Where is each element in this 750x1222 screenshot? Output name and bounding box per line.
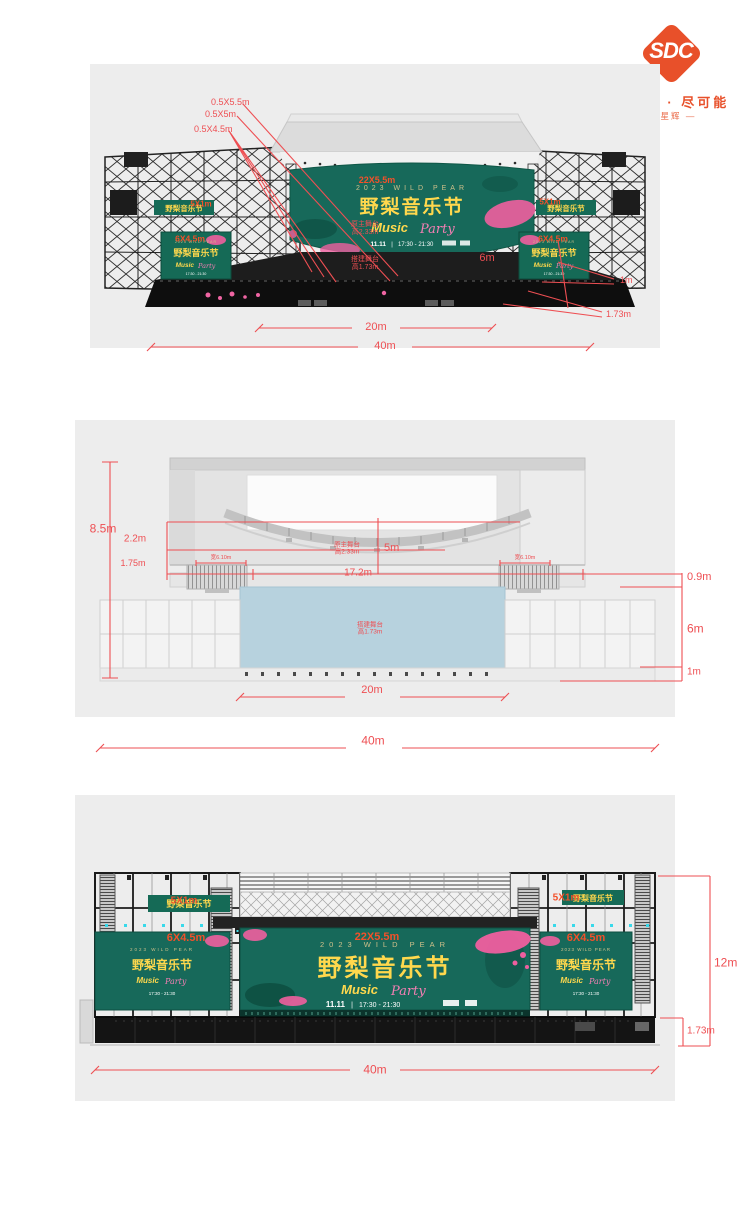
perspective-view-panel: 2023 WILD PEAR 野梨音乐节 Music Party 11.11 |… — [90, 64, 660, 348]
side-banner-title: 野梨音乐节 — [132, 957, 192, 972]
side-elevation-panel — [75, 420, 675, 717]
under-truss-right — [505, 600, 655, 668]
main-screen-size-label-front: 22X5.5m — [355, 931, 400, 943]
speaker-stack-left — [187, 565, 247, 593]
edge-dim: 0.9m — [687, 571, 711, 583]
platform-depth-dim: 1.73m — [606, 310, 631, 320]
perspective-view-drawing: 2023 WILD PEAR 野梨音乐节 Music Party 11.11 |… — [90, 64, 660, 349]
inner-width-dim-side: 20m — [361, 684, 382, 696]
downlights — [127, 875, 207, 880]
banner-party: Party — [390, 984, 426, 999]
banner-date: 11.11 — [370, 241, 386, 248]
speaker-column — [635, 875, 650, 1003]
side-banner-title: 野梨音乐节 — [173, 247, 218, 258]
side-banner-party: Party — [164, 977, 187, 986]
speaker-array — [613, 190, 640, 215]
built-stage-name: 搭建舞台 — [351, 256, 379, 264]
left-strip-size-label: 5X1m — [190, 201, 211, 210]
side-banner-party: Party — [555, 262, 574, 270]
banner-title: 野梨音乐节 — [318, 954, 453, 982]
logo-text: SDC — [611, 38, 731, 64]
side-banner-time: 17:30 - 21:30 — [544, 272, 565, 276]
side-banner-music: Music — [560, 976, 583, 985]
banner-top-line: 2023 WILD PEAR — [356, 185, 468, 192]
left-side-screen: 2023 WILD PEAR 野梨音乐节 Music Party 17:30 -… — [95, 932, 230, 1010]
side-banner-music: Music — [534, 262, 553, 269]
built-stage-height: 高1.73m — [351, 264, 379, 272]
banner-time: 17:30 - 21:30 — [398, 242, 434, 248]
light-beam — [213, 917, 537, 928]
main-stage-note: 原主舞台 高2.33m — [351, 221, 379, 237]
side-banner-top: 2023 WILD PEAR — [561, 947, 611, 952]
height-dim-front: 12m — [714, 956, 737, 969]
outer-width-dim-side: 40m — [361, 734, 384, 747]
side-banner-party: Party — [588, 977, 611, 986]
main-stage-name: 原主舞台 — [351, 221, 379, 229]
ground-platform — [100, 668, 655, 681]
span-dim: 17.2m — [344, 568, 372, 579]
built-stage-note-side: 搭建舞台 高1.73m — [357, 622, 383, 637]
center-roof — [213, 873, 537, 934]
front-elevation-panel: 野梨音乐节 野梨音乐节 2023 WILD PEAR 野梨音乐节 Music P… — [75, 795, 675, 1101]
side-banner-music: Music — [136, 976, 159, 985]
main-screen-size-label: 22X5.5m — [359, 176, 396, 186]
truss-dim-label-3: 0.5X4.5m — [194, 125, 233, 135]
stage-depth-dim: 6m — [479, 252, 494, 264]
side-banner-time: 17:30 - 21:30 — [149, 991, 176, 996]
base-height-dim-front: 1.73m — [687, 1026, 715, 1037]
banner-music: Music — [341, 982, 379, 997]
main-stage-height: 高2.33m — [334, 549, 360, 556]
banner-party: Party — [419, 222, 455, 237]
left-strip-size-label-front: 5X1m — [171, 896, 198, 907]
platform-height-dim: 1m — [620, 276, 633, 286]
front-elevation-drawing: 野梨音乐节 野梨音乐节 2023 WILD PEAR 野梨音乐节 Music P… — [75, 795, 675, 1101]
banner-date: 11.11 — [326, 1000, 346, 1009]
outer-width-dim: 40m — [374, 340, 395, 352]
main-stage-height: 高2.33m — [351, 229, 379, 237]
under-truss-left — [100, 600, 240, 668]
speaker-array — [602, 152, 626, 167]
right-screen-size-label-front: 6X4.5m — [567, 932, 606, 944]
truss-dim-label-1: 0.5X5.5m — [211, 98, 250, 108]
right-strip-size-label: 5X1m — [539, 199, 560, 208]
right-screen-size-label: 6X4.5m — [538, 234, 568, 243]
banner-time: 17:30 - 21:30 — [359, 1002, 400, 1009]
side-banner-time: 17:30 - 21:30 — [186, 272, 207, 276]
downlights — [542, 875, 622, 880]
side-banner-title: 野梨音乐节 — [556, 957, 616, 972]
screen-height-dim: 2.2m — [124, 534, 146, 545]
right-strip-size-label-front: 5X1m — [553, 893, 580, 904]
inner-width-dim: 20m — [365, 321, 386, 333]
side-elevation-drawing — [75, 420, 675, 717]
banner-title: 野梨音乐节 — [359, 195, 464, 218]
speaker-stack-right — [499, 565, 559, 593]
side-banner-time: 17:30 - 21:30 — [573, 991, 600, 996]
side-banner-party: Party — [197, 262, 216, 270]
speaker-array — [110, 190, 137, 215]
banner-sep: | — [351, 1002, 353, 1009]
side-banner-music: Music — [176, 262, 195, 269]
outer-width-dim-front: 40m — [363, 1063, 386, 1076]
drop-dim: 5m — [384, 542, 399, 554]
stage-depth-dim-side: 6m — [687, 622, 704, 635]
main-led-screen: 2023 WILD PEAR 野梨音乐节 Music Party 11.11 |… — [289, 163, 538, 258]
clearance-dim: 1.75m — [120, 559, 145, 569]
left-screen-size-label: 6X4.5m — [175, 234, 205, 243]
speaker-array — [124, 152, 148, 167]
built-stage-note: 搭建舞台 高1.73m — [351, 256, 379, 272]
built-stage-height: 高1.73m — [357, 629, 383, 636]
spe aker-width-label-right: 宽6.10m — [515, 555, 536, 561]
platform-height-dim-side: 1m — [687, 667, 701, 678]
speaker-width-label-left: 宽6.10m — [211, 555, 232, 561]
scissor-lift — [80, 1000, 93, 1043]
side-banner-title: 野梨音乐节 — [531, 247, 576, 258]
left-screen-size-label-front: 6X4.5m — [167, 932, 206, 944]
side-banner-top: 2023 WILD PEAR — [130, 947, 194, 952]
stage-design-sheet: SDC 为可能 · 尽可能 — 星辉 — — [0, 0, 750, 1222]
roof-structure — [170, 458, 585, 565]
main-stage-note-side: 原主舞台 高2.33m — [334, 542, 360, 557]
truss-dim-label-2: 0.5X5m — [205, 110, 236, 120]
total-height-dim: 8.5m — [90, 522, 117, 535]
